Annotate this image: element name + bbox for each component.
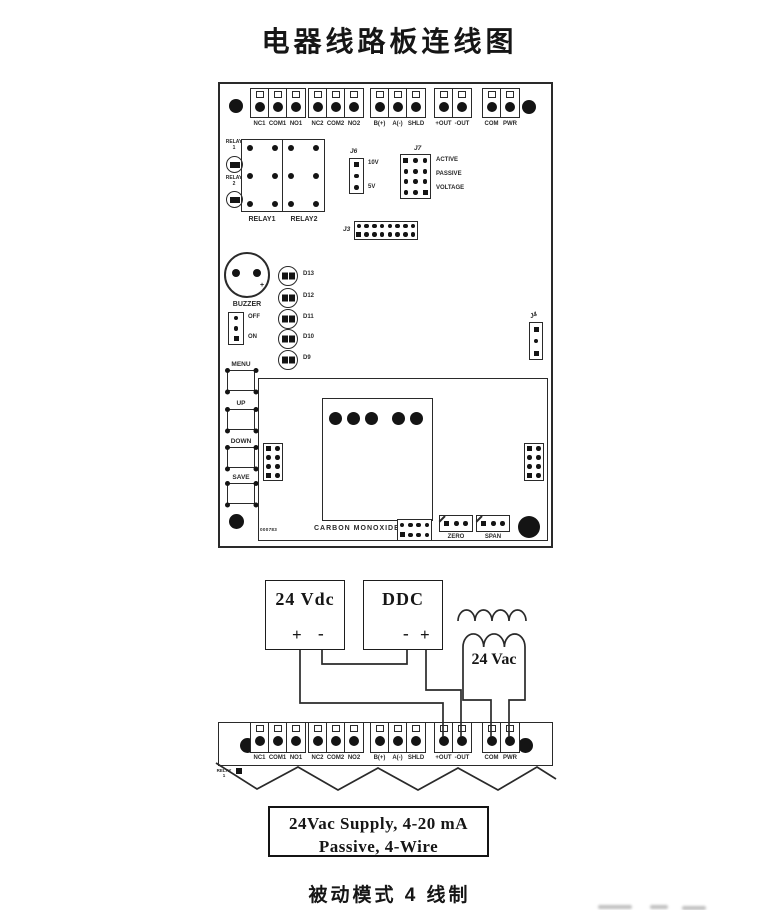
pin — [234, 326, 239, 331]
pin — [423, 179, 428, 184]
mounting-hole — [518, 738, 533, 753]
up-button-label: UP — [225, 400, 257, 407]
down-button — [227, 447, 255, 468]
pin — [527, 473, 532, 478]
screw-slot — [440, 725, 448, 732]
pin — [266, 473, 271, 478]
buzzer-jumper — [228, 312, 244, 345]
wire-hole — [439, 102, 449, 112]
terminal-label: COM — [485, 755, 499, 761]
terminal-group-relay2: NC2 COM2 NO2 — [308, 723, 364, 753]
pin — [395, 224, 400, 229]
board-code: 000783 — [260, 527, 277, 532]
terminal-nc1: NC1 — [251, 723, 269, 752]
pin — [527, 446, 532, 451]
led-d13 — [278, 266, 298, 286]
torn-edge — [216, 763, 556, 790]
terminal-label: +OUT — [435, 755, 451, 761]
screw-slot — [292, 725, 300, 732]
wire-hole — [291, 736, 301, 746]
led-d11 — [278, 309, 298, 329]
j6-label: J6 — [350, 148, 357, 155]
pin — [413, 179, 418, 184]
terminal-a-minus: A(-) — [389, 723, 407, 752]
terminal-label: -OUT — [455, 121, 470, 127]
relay1-component — [241, 139, 283, 212]
wire-hole — [273, 102, 283, 112]
terminal-com: COM — [483, 723, 501, 752]
buzzer-component — [224, 252, 270, 298]
pin — [404, 169, 409, 174]
relay1-label-line2: 1 — [233, 145, 236, 151]
pin — [425, 533, 430, 538]
terminal-label: NO1 — [290, 755, 302, 761]
scan-artifact — [598, 905, 632, 909]
terminal-label: COM2 — [327, 755, 344, 761]
terminal-label: PWR — [503, 121, 517, 127]
transformer-secondary-coil — [463, 634, 525, 647]
terminal-pwr: PWR — [501, 723, 519, 752]
caption-line1: 24Vac Supply, 4-20 mA — [270, 813, 487, 836]
buzzer-pin — [253, 269, 261, 277]
screw-slot — [488, 725, 496, 732]
scanned-wiring-diagram: 电器线路板连线图 NC1 COM1 NO1 NC2 COM2 NO2 B(+) … — [0, 0, 779, 910]
pin — [536, 446, 541, 451]
pin — [388, 232, 393, 237]
terminal-label: NO2 — [348, 755, 360, 761]
terminal-group-output: +OUT -OUT — [434, 723, 472, 753]
pin — [423, 169, 428, 174]
right-8pin-header — [524, 443, 544, 481]
terminal-group-relay1: NC1 COM1 NO1 — [250, 723, 306, 753]
j6-option-10v: 10V — [368, 160, 379, 166]
caption-box: 24Vac Supply, 4-20 mA Passive, 4-Wire — [268, 806, 489, 857]
buzzer-plus-mark: + — [260, 282, 264, 289]
j7-header — [400, 154, 431, 199]
relay1-box-label: RELAY1 — [241, 216, 283, 223]
sensor-8pin-header — [397, 519, 432, 541]
wire-hole — [255, 102, 265, 112]
screw-slot — [412, 725, 420, 732]
pin — [388, 224, 393, 229]
pin — [411, 232, 416, 237]
psu-plus-sign: + — [292, 625, 302, 645]
j3-header — [354, 221, 418, 240]
zero-trimmer — [439, 515, 473, 532]
footer-caption: 被动模式 4 线制 — [0, 880, 779, 907]
psu-box: 24 Vdc — [265, 580, 345, 650]
menu-button — [227, 370, 255, 391]
j7-label: J7 — [414, 145, 421, 152]
terminal-label: NO2 — [348, 121, 360, 127]
screw-slot — [274, 91, 282, 98]
transformer-label: 24 Vac — [462, 651, 526, 669]
terminal-com2: COM2 — [327, 723, 345, 752]
terminal-shld: SHLD — [407, 723, 425, 752]
sensor-pin — [410, 412, 423, 425]
screw-slot — [506, 725, 514, 732]
pin — [364, 232, 369, 237]
led-d12 — [278, 288, 298, 308]
wire-hole — [487, 736, 497, 746]
caption-line2: Passive, 4-Wire — [270, 836, 487, 859]
led-d13-label: D13 — [303, 271, 314, 277]
screw-slot — [412, 91, 420, 98]
transformer-primary-coil — [458, 610, 526, 621]
sensor-pin — [392, 412, 405, 425]
led-d11-label: D11 — [303, 314, 314, 320]
led-d9-label: D9 — [303, 355, 311, 361]
screw-slot — [376, 725, 384, 732]
pin — [266, 464, 271, 469]
terminal-nc1: NC1 — [251, 89, 269, 117]
wire-hole — [331, 102, 341, 112]
pin — [413, 169, 418, 174]
wire-psu-minus-to-ddc-minus — [322, 650, 407, 664]
pin — [408, 533, 413, 538]
pin — [463, 521, 468, 526]
terminal-no2: NO2 — [345, 89, 363, 117]
wire-hole — [349, 102, 359, 112]
pin — [536, 473, 541, 478]
pin — [266, 446, 271, 451]
pin — [372, 232, 377, 237]
torn-relay-note: RELAY 1 — [212, 769, 236, 779]
terminal-b-plus: B(+) — [371, 89, 389, 117]
save-button-label: SAVE — [225, 474, 257, 481]
sensor-pin — [329, 412, 342, 425]
terminal-group-relay2: NC2 COM2 NO2 — [308, 88, 364, 118]
screw-slot — [506, 91, 514, 98]
terminal-no1: NO1 — [287, 89, 305, 117]
screw-slot — [394, 91, 402, 98]
scan-artifact — [682, 906, 706, 910]
save-button — [227, 483, 255, 504]
pin — [423, 190, 428, 195]
pin — [413, 190, 418, 195]
j7-option-voltage: VOLTAGE — [436, 185, 464, 191]
psu-minus-sign: - — [318, 624, 324, 644]
pin — [403, 232, 408, 237]
sensor-pin — [365, 412, 378, 425]
terminal-label: PWR — [503, 755, 517, 761]
pin — [527, 464, 532, 469]
pin — [534, 327, 539, 332]
torn-note-line2: 1 — [223, 773, 226, 778]
j6-header — [349, 158, 364, 194]
terminal-nc2: NC2 — [309, 723, 327, 752]
pin — [444, 521, 449, 526]
terminal-group-output: +OUT -OUT — [434, 88, 472, 118]
pin — [354, 174, 359, 179]
screw-slot — [350, 91, 358, 98]
terminal-label: B(+) — [374, 121, 386, 127]
pin — [404, 179, 409, 184]
wire-hole — [457, 736, 467, 746]
led-d12-label: D12 — [303, 293, 314, 299]
mounting-hole — [518, 516, 540, 538]
terminal-com: COM — [483, 89, 501, 117]
screw-slot — [458, 91, 466, 98]
screw-slot — [394, 725, 402, 732]
terminal-group-signal: B(+) A(-) SHLD — [370, 88, 426, 118]
screw-slot — [256, 725, 264, 732]
j7-option-active: ACTIVE — [436, 157, 458, 163]
page-title: 电器线路板连线图 — [0, 20, 779, 60]
pin — [536, 455, 541, 460]
terminal-com1: COM1 — [269, 723, 287, 752]
terminal-group-power: COM PWR — [482, 723, 520, 753]
pin — [454, 521, 459, 526]
pin — [403, 224, 408, 229]
j7-option-passive: PASSIVE — [436, 171, 462, 177]
screw-slot — [314, 91, 322, 98]
terminal-label: NC1 — [253, 755, 265, 761]
pin — [416, 523, 421, 528]
pin — [380, 232, 385, 237]
pin — [491, 521, 496, 526]
pin — [356, 232, 361, 237]
terminal-label: NC2 — [311, 121, 323, 127]
ddc-box-label: DDC — [364, 589, 442, 610]
ddc-minus-sign: - — [403, 624, 409, 644]
pin — [425, 523, 430, 528]
terminal-label: -OUT — [455, 755, 470, 761]
terminal-group-relay1: NC1 COM1 NO1 — [250, 88, 306, 118]
terminal-group-power: COM PWR — [482, 88, 520, 118]
pin — [400, 523, 405, 528]
wire-hole — [411, 736, 421, 746]
terminal-label: COM — [485, 121, 499, 127]
down-button-label: DOWN — [225, 438, 257, 445]
wire-hole — [255, 736, 265, 746]
terminal-label: COM1 — [269, 755, 286, 761]
mounting-hole — [229, 99, 243, 113]
buzzer-on-label: ON — [248, 334, 257, 340]
screw-slot — [332, 91, 340, 98]
j3-label: J3 — [343, 226, 350, 233]
pin — [234, 316, 239, 321]
terminal-no1: NO1 — [287, 723, 305, 752]
wire-hole — [393, 102, 403, 112]
pin — [527, 455, 532, 460]
pin — [423, 158, 428, 163]
wire-hole — [313, 102, 323, 112]
relay2-component — [283, 139, 325, 212]
terminal-pwr: PWR — [501, 89, 519, 117]
relay2-box-label: RELAY2 — [283, 216, 325, 223]
mounting-hole — [522, 100, 536, 114]
pin — [266, 455, 271, 460]
pin — [380, 224, 385, 229]
left-8pin-header — [263, 443, 283, 481]
up-button — [227, 409, 255, 430]
pin — [364, 224, 369, 229]
span-trimmer — [476, 515, 510, 532]
sensor-label: CARBON MONOXIDE — [314, 525, 400, 532]
pin — [404, 190, 409, 195]
ddc-plus-sign: + — [420, 625, 430, 645]
pin — [534, 339, 539, 344]
wire-hole — [375, 102, 385, 112]
pin — [534, 351, 539, 356]
terminal-a-minus: A(-) — [389, 89, 407, 117]
screw-slot — [274, 725, 282, 732]
pin — [275, 473, 280, 478]
terminal-no2: NO2 — [345, 723, 363, 752]
pin — [354, 162, 359, 167]
terminal-label: NC1 — [253, 121, 265, 127]
pin — [481, 521, 486, 526]
psu-box-label: 24 Vdc — [266, 589, 344, 610]
terminal-com1: COM1 — [269, 89, 287, 117]
screw-slot — [332, 725, 340, 732]
pin — [408, 523, 413, 528]
led-d10-label: D10 — [303, 334, 314, 340]
screw-slot — [458, 725, 466, 732]
terminal-group-signal: B(+) A(-) SHLD — [370, 723, 426, 753]
terminal-label: A(-) — [392, 755, 402, 761]
terminal-label: COM1 — [269, 121, 286, 127]
screw-slot — [314, 725, 322, 732]
terminal-label: NO1 — [290, 121, 302, 127]
torn-fragment-pad — [236, 768, 242, 774]
led-d10 — [278, 329, 298, 349]
screw-slot — [350, 725, 358, 732]
wire-hole — [393, 736, 403, 746]
screw-slot — [440, 91, 448, 98]
terminal-out-plus: +OUT — [435, 723, 453, 752]
screw-slot — [292, 91, 300, 98]
pin — [536, 464, 541, 469]
screw-slot — [376, 91, 384, 98]
terminal-out-minus: -OUT — [453, 89, 471, 117]
pin — [234, 336, 239, 341]
led-d9 — [278, 350, 298, 370]
pin — [400, 532, 405, 537]
wire-hole — [505, 736, 515, 746]
wire-hole — [375, 736, 385, 746]
sensor-pin — [347, 412, 360, 425]
mounting-hole — [229, 514, 244, 529]
pin — [416, 533, 421, 538]
pin — [275, 464, 280, 469]
terminal-label: A(-) — [392, 121, 402, 127]
pin — [500, 521, 505, 526]
wire-hole — [457, 102, 467, 112]
menu-button-label: MENU — [225, 361, 257, 368]
wire-hole — [313, 736, 323, 746]
screw-slot — [488, 91, 496, 98]
screw-slot — [256, 91, 264, 98]
terminal-label: +OUT — [435, 121, 451, 127]
terminal-com2: COM2 — [327, 89, 345, 117]
pin — [403, 158, 408, 163]
wire-hole — [273, 736, 283, 746]
wire-hole — [349, 736, 359, 746]
pin — [413, 158, 418, 163]
wire-hole — [439, 736, 449, 746]
buzzer-pin — [232, 269, 240, 277]
pin — [275, 446, 280, 451]
terminal-out-plus: +OUT — [435, 89, 453, 117]
pin — [275, 455, 280, 460]
span-trimmer-label: SPAN — [476, 534, 510, 540]
terminal-label: SHLD — [408, 755, 424, 761]
buzzer-off-label: OFF — [248, 314, 260, 320]
wire-hole — [411, 102, 421, 112]
scan-artifact — [650, 905, 668, 909]
terminal-label: B(+) — [374, 755, 386, 761]
pin — [372, 224, 377, 229]
terminal-label: COM2 — [327, 121, 344, 127]
terminal-nc2: NC2 — [309, 89, 327, 117]
wire-hole — [331, 736, 341, 746]
terminal-b-plus: B(+) — [371, 723, 389, 752]
terminal-out-minus: -OUT — [453, 723, 471, 752]
pin — [395, 232, 400, 237]
terminal-label: NC2 — [311, 755, 323, 761]
pin — [354, 185, 359, 190]
wire-hole — [291, 102, 301, 112]
zero-trimmer-label: ZERO — [439, 534, 473, 540]
terminal-shld: SHLD — [407, 89, 425, 117]
pin — [411, 224, 416, 229]
wire-hole — [487, 102, 497, 112]
wire-hole — [505, 102, 515, 112]
j6-option-5v: 5V — [368, 184, 375, 190]
pin — [357, 224, 362, 229]
relay2-label-line2: 2 — [233, 181, 236, 187]
terminal-label: SHLD — [408, 121, 424, 127]
j4-header — [529, 322, 543, 360]
buzzer-label: BUZZER — [220, 301, 274, 308]
